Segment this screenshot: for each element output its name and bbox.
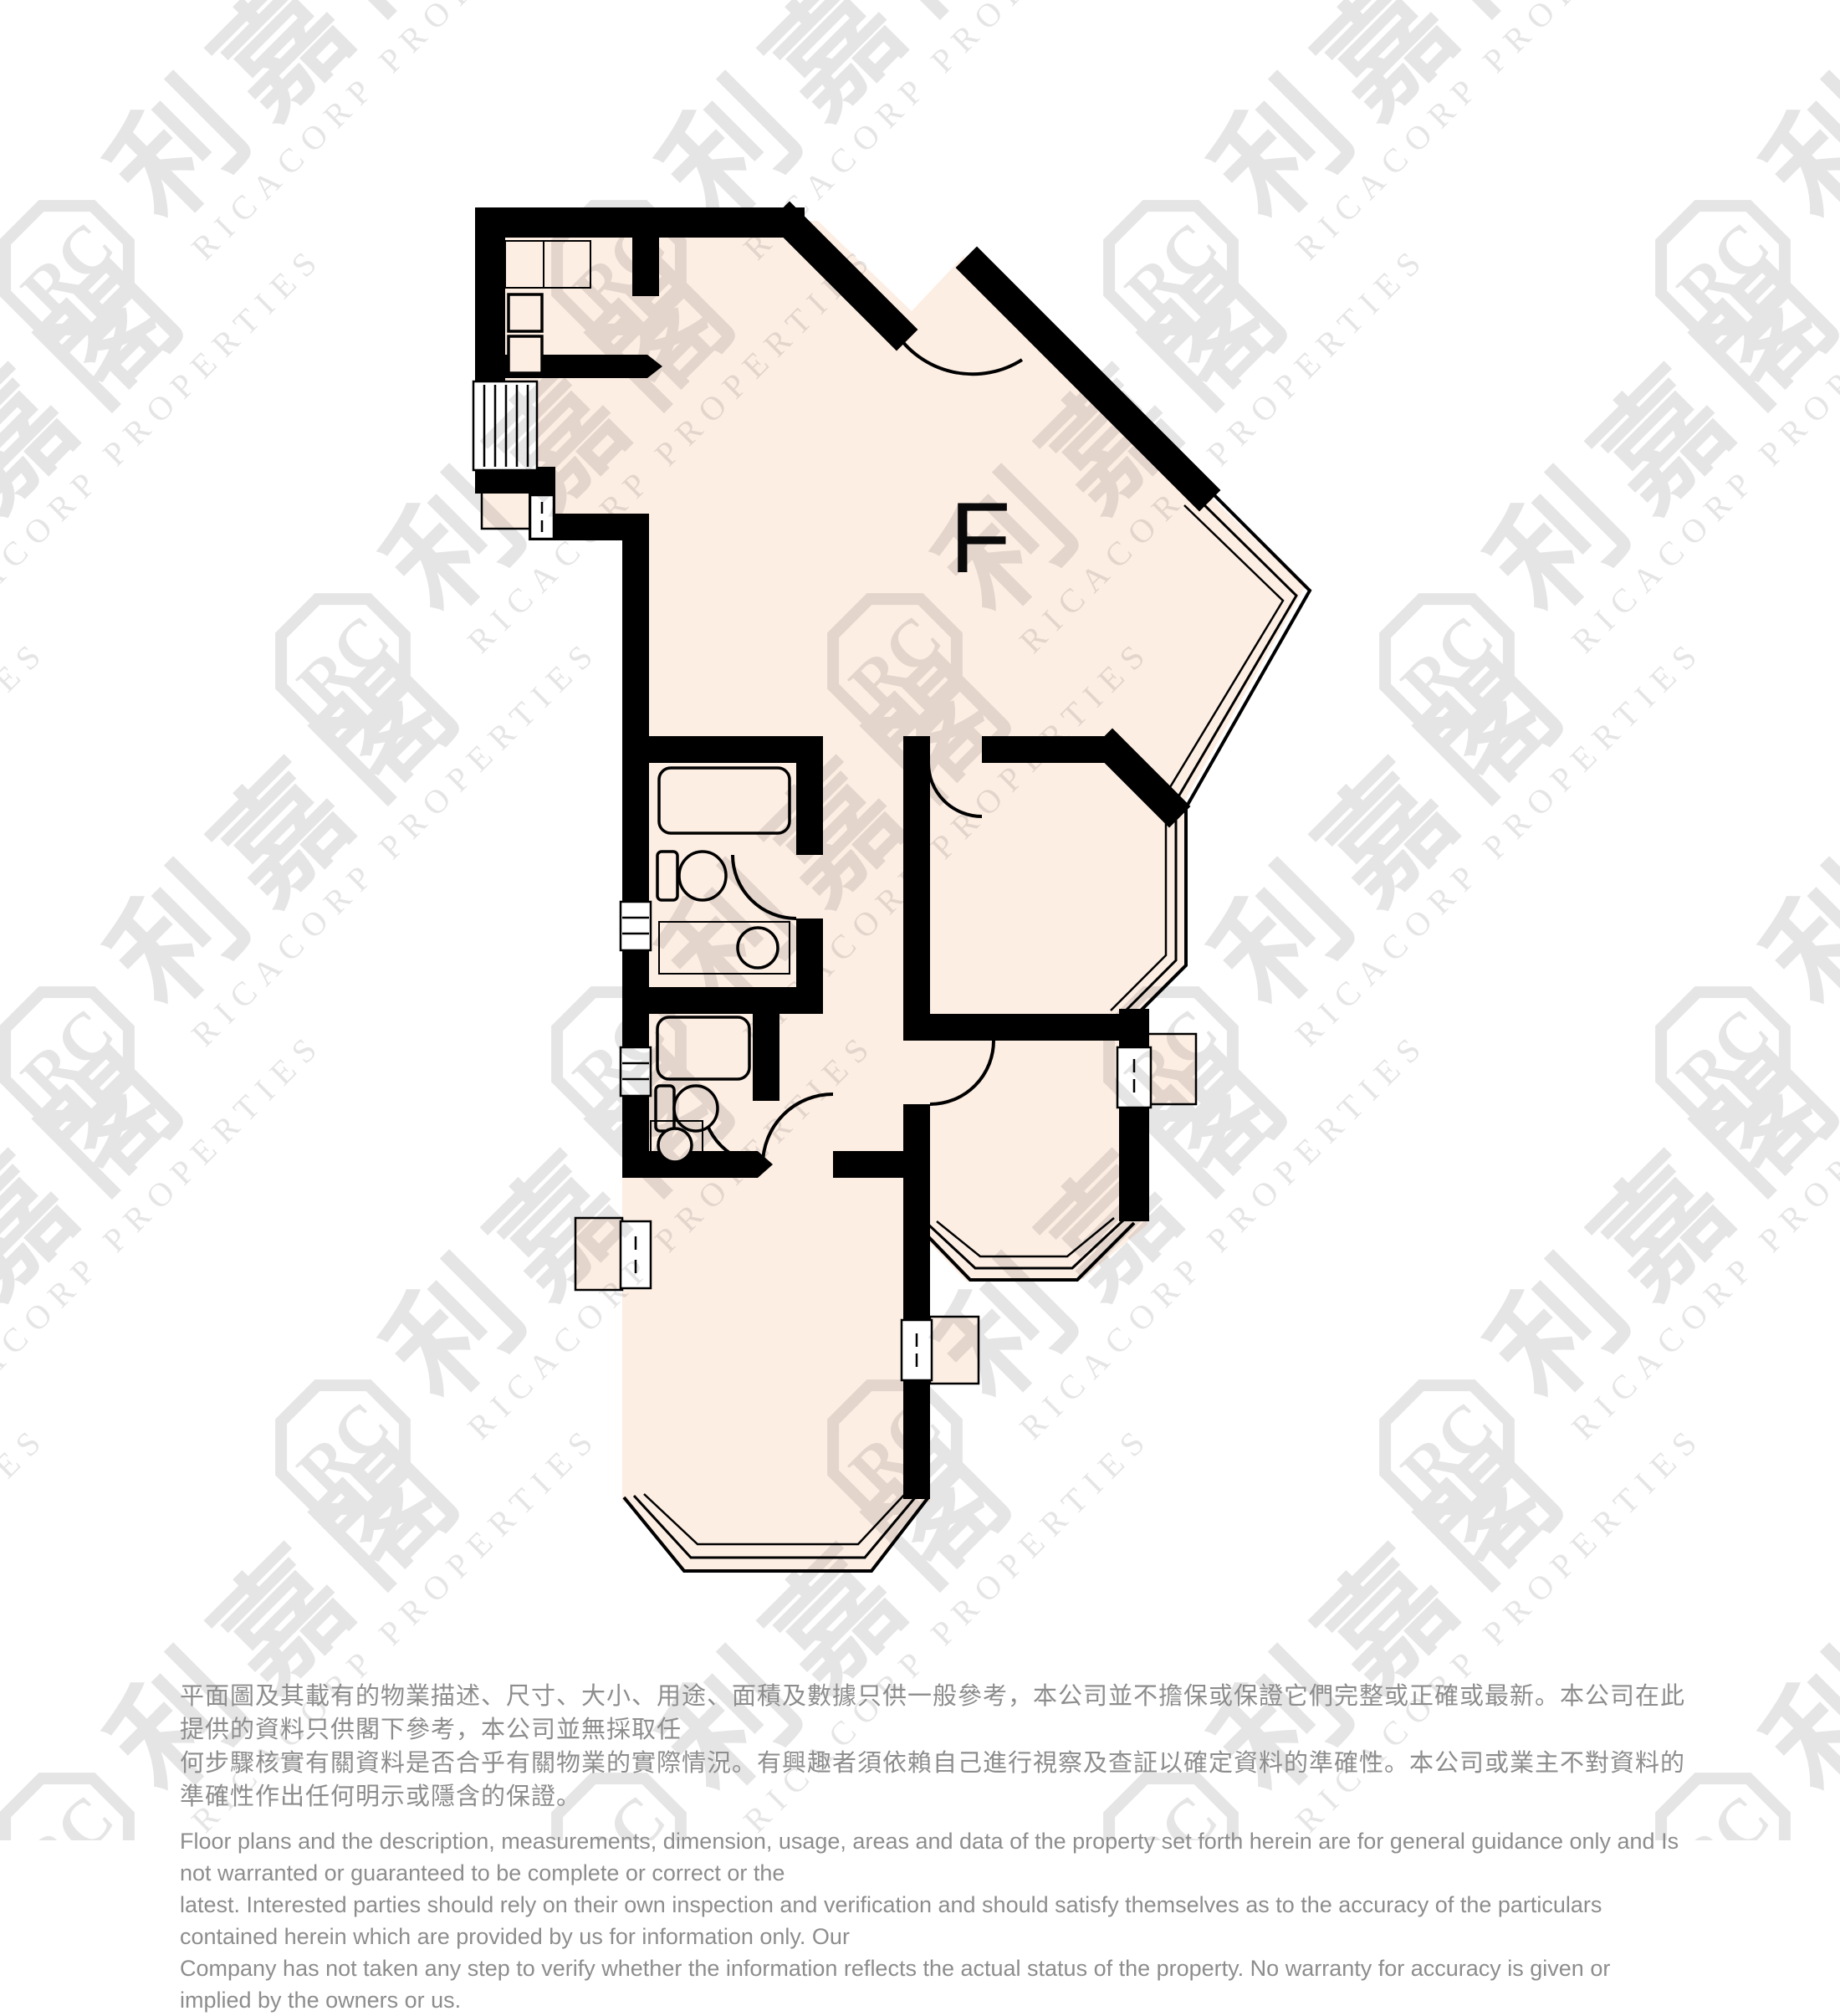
disclaimer-zh: 平面圖及其載有的物業描述、尺寸、大小、用途、面積及數據只供一般參考，本公司並不擔…: [180, 1680, 1685, 1814]
disclaimer-line: latest. Interested parties should rely o…: [180, 1889, 1685, 1952]
disclaimer: 平面圖及其載有的物業描述、尺寸、大小、用途、面積及數據只供一般參考，本公司並不擔…: [180, 1680, 1685, 2016]
disclaimer-line: 平面圖及其載有的物業描述、尺寸、大小、用途、面積及數據只供一般參考，本公司並不擔…: [180, 1680, 1685, 1747]
ricacorp-watermark: RC利嘉閣RICACORP PROPERTIES: [0, 1322, 54, 1840]
disclaimer-line: Company has not taken any step to verify…: [180, 1952, 1685, 2016]
floor-plan-drawing: F RC利嘉閣RICACORP PROPERTIESRC利嘉閣RICACORP …: [0, 0, 1840, 1840]
disclaimer-line: Floor plans and the description, measure…: [180, 1825, 1685, 1889]
watermark-name-zh: 利嘉閣: [1742, 622, 1840, 1032]
stove-top: [509, 294, 542, 331]
floor-plan-page: F RC利嘉閣RICACORP PROPERTIESRC利嘉閣RICACORP …: [0, 0, 1840, 1840]
ricacorp-watermark: RC利嘉閣RICACORP PROPERTIES: [1353, 142, 1840, 776]
disclaimer-en: Floor plans and the description, measure…: [180, 1825, 1685, 2016]
ricacorp-watermark: RC利嘉閣RICACORP PROPERTIES: [1353, 929, 1840, 1563]
disclaimer-line: 何步驟核實有關資料是否合乎有關物業的實際情況。有興趣者須依賴自己進行視察及查証以…: [180, 1747, 1685, 1814]
toilet: [657, 852, 677, 900]
watermark-name-zh: 利嘉閣: [1742, 1408, 1840, 1819]
